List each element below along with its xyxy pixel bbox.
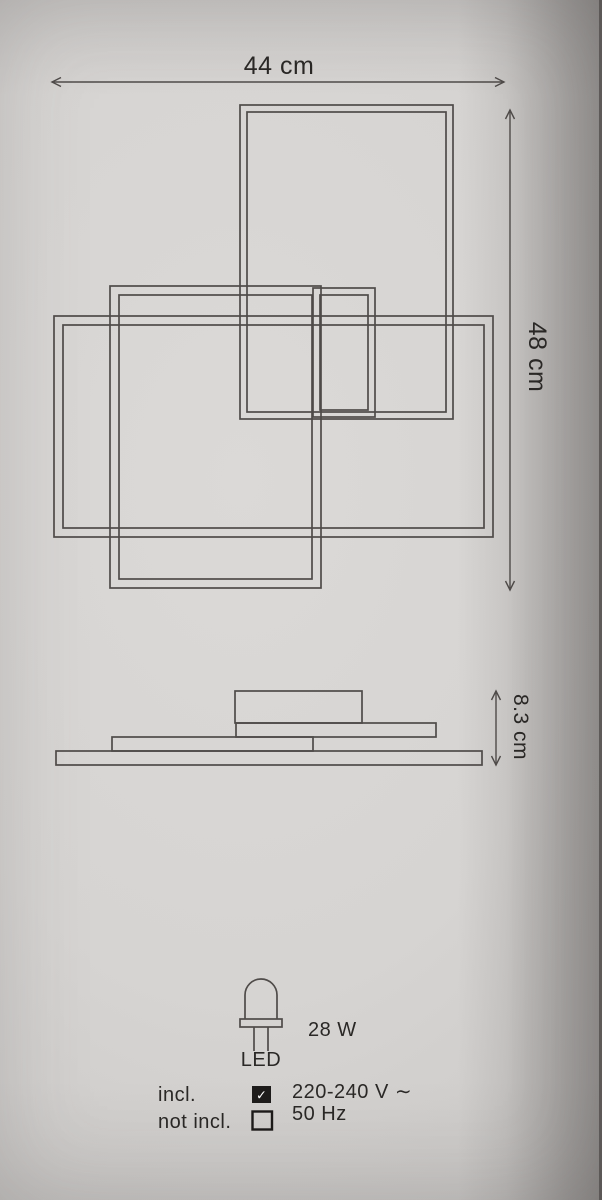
frame-medium xyxy=(110,286,321,588)
side-frame-top xyxy=(236,723,436,737)
side-frame-middle xyxy=(112,737,313,751)
frame-connector xyxy=(313,288,375,417)
frame-large-inner xyxy=(63,325,484,528)
check-icon: ✓ xyxy=(256,1088,267,1103)
side-view-drawing xyxy=(56,691,482,765)
packaging-diagram-photo: 44 cm xyxy=(0,0,602,1200)
frame-tall-outer xyxy=(240,105,453,419)
included-label: incl. xyxy=(158,1084,196,1106)
side-frame-bottom xyxy=(56,751,482,765)
voltage-label: 220-240 V ∼ xyxy=(292,1081,412,1103)
width-dimension-label: 44 cm xyxy=(244,52,315,80)
wattage-label: 28 W xyxy=(308,1019,357,1041)
legend-electrical: incl. ✓ 220-240 V ∼ not incl. 50 Hz xyxy=(158,1081,412,1133)
depth-dimension-label: 8.3 cm xyxy=(509,694,532,760)
frame-medium-outer xyxy=(110,286,321,588)
front-view-drawing xyxy=(54,105,493,588)
width-dimension: 44 cm xyxy=(52,52,504,87)
frequency-label: 50 Hz xyxy=(292,1103,347,1125)
frame-tall-inner xyxy=(247,112,446,412)
frame-tall xyxy=(240,105,453,419)
led-label: LED xyxy=(241,1049,281,1071)
not-included-checkbox xyxy=(253,1112,273,1130)
led-spec: LED 28 W xyxy=(240,979,357,1071)
led-dome xyxy=(245,979,277,1019)
lamp-dimension-diagram: 44 cm xyxy=(0,0,602,1200)
led-flange xyxy=(240,1019,282,1027)
included-checkbox: ✓ xyxy=(252,1086,271,1103)
led-bulb-icon xyxy=(240,979,282,1051)
not-included-label: not incl. xyxy=(158,1111,231,1133)
depth-dimension: 8.3 cm xyxy=(492,691,533,765)
frame-connector-outer xyxy=(313,288,375,417)
canopy-mount-box xyxy=(235,691,362,723)
height-dimension: 48 cm xyxy=(506,110,552,590)
frame-connector-inner xyxy=(320,295,368,410)
height-dimension-label: 48 cm xyxy=(523,322,551,393)
